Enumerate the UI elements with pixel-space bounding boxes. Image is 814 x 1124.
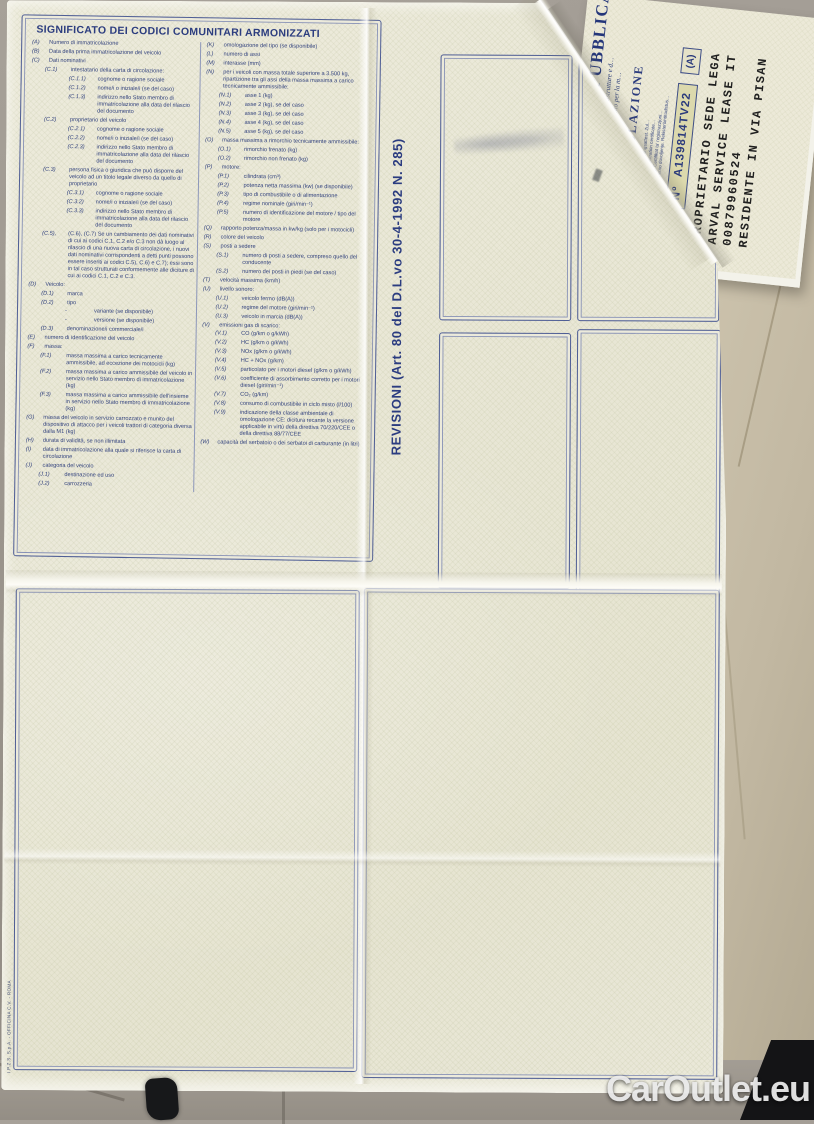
legend-entry: (J)categoria del veicolo — [25, 463, 193, 473]
legend-title: SIGNIFICATO DEI CODICI COMUNITARI ARMONI… — [36, 24, 372, 41]
legend-entry: (D.3)denominazione/i commerciale/i — [41, 326, 196, 335]
legend-entry: (N.5)asse 5 (kg), se del caso — [218, 128, 373, 137]
empty-panel-box — [13, 588, 360, 1072]
legend-entry: (E)numero di identificazione del veicolo — [27, 335, 195, 345]
revision-box — [576, 329, 721, 594]
legend-entry: (C.5),(C.6), (C.7) Se un cambiamento dei… — [41, 230, 196, 281]
legend-entry: (C.2.3)indirizzo nello Stato membro di i… — [67, 144, 198, 167]
legend-entry: (N)per i veicoli con massa totale superi… — [206, 69, 374, 93]
legend-entry: (I)data di immatricolazione alla quale s… — [26, 447, 194, 464]
legend-entry: (O.1)rimorchio frenato (kg) — [218, 146, 373, 155]
legend-entry: (M)interasse (mm) — [206, 60, 374, 70]
legend-entry: (P.3)tipo di combustibile o di alimentaz… — [217, 191, 372, 200]
legend-entry: (J.1)destinazione ed uso — [38, 472, 193, 481]
small-dark-object — [145, 1077, 180, 1121]
legend-entry: (P.2)potenza netta massima (kw) (se disp… — [217, 182, 372, 191]
legend-entry: (A)Numero di immatricolazione — [32, 39, 200, 49]
legend-entry: -versione (se disponibile) — [65, 318, 196, 327]
legend-entry: (F.1)massa massima a carico tecnicamente… — [40, 353, 195, 369]
legend-entry: (C.3.2)nome/i o iniziale/i (se del caso) — [67, 199, 198, 208]
section-a-marker: (A) — [680, 48, 702, 76]
legend-entry: (S.2)numero dei posti in piedi (se del c… — [216, 268, 371, 277]
legend-entry: (V.8)consumo di combustibile in ciclo mi… — [214, 401, 369, 410]
legend-entry: (C.1.1)cognome o ragione sociale — [69, 76, 200, 85]
legend-entry: (C.3.1)cognome o ragione sociale — [67, 190, 198, 199]
legend-entry: (C.1)intestatario della carta di circola… — [45, 67, 200, 76]
watermark-text: CarOutlet.eu — [606, 1068, 810, 1110]
legend-entry: (O)massa massima a rimorchio tecnicament… — [205, 137, 373, 147]
legend-entry: (N.3)asse 3 (kg), se del caso — [219, 110, 374, 119]
legend-entry: (P.4)regime nominale (giri/min⁻¹) — [217, 200, 372, 209]
legend-entry: (R)colore del veicolo — [204, 234, 372, 244]
legend-entry: (P)motore: — [205, 164, 373, 174]
legend-entry: (F.3)massa massima a carico ammissibile … — [39, 392, 194, 415]
legend-entry: (H)durata di validità, se non illimitata — [26, 438, 194, 448]
revision-box — [438, 332, 571, 589]
legend-entry: (V.7)CO₂ (g/km) — [214, 392, 369, 401]
legend-entry: (C.2.1)cognome o ragione sociale — [68, 126, 199, 135]
legend-entry: (P.5)numero di identificazione del motor… — [217, 209, 372, 225]
legend-entry: (D)Veicolo: — [28, 281, 196, 291]
printer-imprint: I.P.Z.S. S.p.A. - OFFICINA C.V. - ROMA — [6, 980, 11, 1073]
legend-entry: (V)emissioni gas di scarico: — [202, 322, 370, 332]
legend-entry: (U.3)veicolo in marcia (dB(A)) — [215, 313, 370, 322]
legend-entry: (S.1)numero di posti a sedere, compreso … — [216, 252, 371, 268]
legend-entry: -variante (se disponibile) — [65, 309, 196, 318]
legend-entry: (K)omologazione del tipo (se disponibile… — [207, 42, 375, 52]
legend-entry: (V.3)NOx (g/km o g/kWh) — [215, 349, 370, 358]
revision-box — [439, 54, 572, 321]
legend-entry: (B)Data della prima immatricolazione del… — [32, 48, 200, 58]
legend-entry: (U.2)regime del motore (giri/min⁻¹) — [215, 304, 370, 313]
legend-entry: (S)posti a sedere — [203, 243, 371, 253]
registration-sheet: SIGNIFICATO DEI CODICI COMUNITARI ARMONI… — [1, 0, 729, 1094]
legend-entry: (V.1)CO (g/km o g/kWh) — [215, 331, 370, 340]
legend-entry: (F.2)massa massima a carico ammissibile … — [40, 369, 195, 392]
legend-entry: (V.6)coefficiente di assorbimento corret… — [214, 376, 369, 392]
legend-entry: (C.2)proprietario del veicolo — [44, 117, 199, 126]
legend-column-left: (A)Numero di immatricolazione(B)Data del… — [25, 39, 200, 492]
legend-entry: (C.3)persona fisica o giuridica che può … — [43, 166, 198, 189]
legend-entry: (F)massa: — [27, 344, 195, 354]
legend-entry: (J.2)carrozzeria — [38, 481, 193, 490]
legend-column-right: (K)omologazione del tipo (se disponibile… — [193, 42, 375, 495]
legend-entry: (T)velocità massima (km/h) — [203, 277, 371, 287]
legend-entry: (N.1)asse 1 (kg) — [219, 92, 374, 101]
legend-entry: (V.2)HC (g/km o g/kWh) — [215, 340, 370, 349]
legend-entry: (G)massa del veicolo in servizio carrozz… — [26, 415, 194, 439]
document-number-value: A139814TV22 — [673, 92, 694, 178]
horizontal-fold-crease — [6, 570, 722, 598]
legend-entry: (N.2)asse 2 (kg), se del caso — [219, 101, 374, 110]
legend-entry: (W)capacità del serbatoio o dei serbatoi… — [200, 439, 368, 449]
legend-box: SIGNIFICATO DEI CODICI COMUNITARI ARMONI… — [13, 14, 381, 562]
legend-entry: (D.2)tipo — [41, 299, 196, 308]
legend-entry: (C)Dati nominativi — [32, 57, 200, 67]
floor-seam — [282, 1090, 285, 1124]
legend-columns: (A)Numero di immatricolazione(B)Data del… — [15, 39, 380, 495]
revisioni-label: REVISIONI (Art. 80 del D.L.vo 30-4-1992 … — [388, 138, 405, 455]
legend-entry: (N.4)asse 4 (kg), se del caso — [218, 119, 373, 128]
legend-entry: (C.1.2)nome/i o iniziale/i (se del caso) — [68, 85, 199, 94]
legend-entry: (Q)rapporto potenza/massa in kw/kg (solo… — [204, 225, 372, 235]
legend-entry: (L)numero di assi — [206, 51, 374, 61]
legend-entry: (U)livello sonoro: — [203, 286, 371, 296]
legend-entry: (V.4)HC + NOx (g/km) — [215, 358, 370, 367]
legend-entry: (C.1.3)indirizzo nello Stato membro di i… — [68, 94, 199, 117]
legend-entry: (C.3.3)indirizzo nello Stato membro di i… — [66, 208, 197, 231]
legend-entry: (C.2.2)nome/i o iniziale/i (se del caso) — [68, 135, 199, 144]
legend-entry: (U.1)veicolo fermo (dB(A)) — [216, 295, 371, 304]
legend-entry: (V.5)particolato per i motori diesel (g/… — [215, 367, 370, 376]
legend-entry: (D.1)marca — [41, 290, 196, 299]
legend-entry: (V.9)indicazione della classe ambientale… — [214, 410, 369, 440]
empty-panel-box — [361, 588, 720, 1080]
legend-entry: (P.1)cilindrata (cm³) — [218, 173, 373, 182]
legend-entry: (O.2)rimorchio non frenato (kg) — [218, 155, 373, 164]
